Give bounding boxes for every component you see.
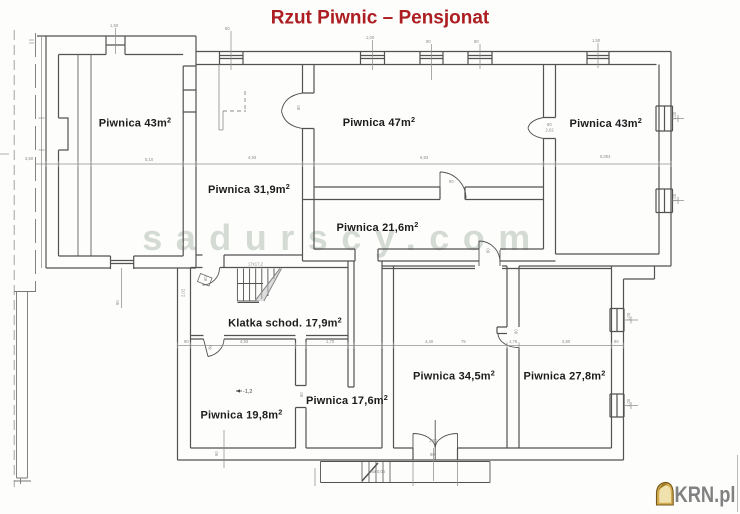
svg-text:2,02: 2,02 [181, 288, 186, 297]
svg-text:KRN.pl: KRN.pl [675, 482, 736, 507]
svg-text:-1,2: -1,2 [243, 389, 252, 395]
svg-text:80: 80 [514, 329, 519, 334]
svg-text:75: 75 [461, 339, 466, 344]
svg-text:90: 90 [430, 452, 435, 457]
svg-text:Piwnica 47m2: Piwnica 47m2 [343, 115, 416, 129]
svg-text:90: 90 [115, 300, 120, 305]
svg-text:Piwnica 43m2: Piwnica 43m2 [570, 116, 643, 130]
svg-text:1,00: 1,00 [626, 398, 631, 407]
svg-text:90: 90 [184, 339, 189, 344]
svg-text:4,93: 4,93 [240, 339, 249, 344]
svg-text:1,50: 1,50 [110, 23, 119, 28]
svg-text:1,00: 1,00 [672, 111, 677, 120]
svg-text:90: 90 [614, 339, 619, 344]
svg-text:17x17,2: 17x17,2 [248, 262, 264, 267]
svg-text:Klatka schod. 17,9m2: Klatka schod. 17,9m2 [228, 315, 342, 329]
svg-text:2,80: 2,80 [562, 339, 571, 344]
svg-text:90: 90 [474, 39, 479, 44]
svg-text:5,004: 5,004 [600, 154, 611, 159]
svg-text:6,93: 6,93 [420, 155, 429, 160]
svg-text:+Na 0,05: +Na 0,05 [368, 469, 386, 474]
svg-text:Piwnica 27,8m2: Piwnica 27,8m2 [523, 368, 605, 382]
svg-text:Piwnica 19,8m2: Piwnica 19,8m2 [200, 407, 282, 421]
svg-text:90: 90 [426, 39, 431, 44]
svg-text:2,02: 2,02 [546, 128, 555, 133]
svg-text:1,75: 1,75 [509, 339, 518, 344]
svg-text:1,00: 1,00 [626, 312, 631, 321]
svg-text:80: 80 [547, 122, 552, 127]
svg-text:4,40: 4,40 [425, 339, 434, 344]
svg-text:5,10: 5,10 [145, 157, 154, 162]
svg-text:Piwnica 31,9m2: Piwnica 31,9m2 [208, 182, 290, 196]
svg-text:1,70: 1,70 [326, 339, 335, 344]
svg-text:4,93: 4,93 [248, 155, 257, 160]
svg-text:80: 80 [207, 344, 213, 350]
svg-text:90: 90 [214, 451, 219, 456]
svg-text:80: 80 [225, 26, 230, 31]
svg-text:90: 90 [449, 179, 454, 184]
svg-text:1,50: 1,50 [429, 438, 438, 443]
svg-text:Piwnica 43m2: Piwnica 43m2 [99, 115, 172, 129]
svg-text:Piwnica 34,5m2: Piwnica 34,5m2 [413, 368, 495, 382]
svg-text:80: 80 [486, 248, 491, 253]
svg-text:80: 80 [296, 105, 301, 110]
svg-text:1,50: 1,50 [592, 38, 601, 43]
svg-text:80: 80 [299, 392, 304, 397]
svg-text:3,60: 3,60 [25, 156, 34, 161]
svg-text:Piwnica 17,6m2: Piwnica 17,6m2 [306, 393, 388, 407]
svg-text:Piwnica 21,6m2: Piwnica 21,6m2 [336, 220, 418, 234]
svg-text:1,00: 1,00 [672, 193, 677, 202]
svg-text:1,00: 1,00 [366, 35, 375, 40]
svg-text:Rzut Piwnic – Pensjonat: Rzut Piwnic – Pensjonat [271, 8, 490, 29]
svg-text:80: 80 [203, 276, 208, 281]
